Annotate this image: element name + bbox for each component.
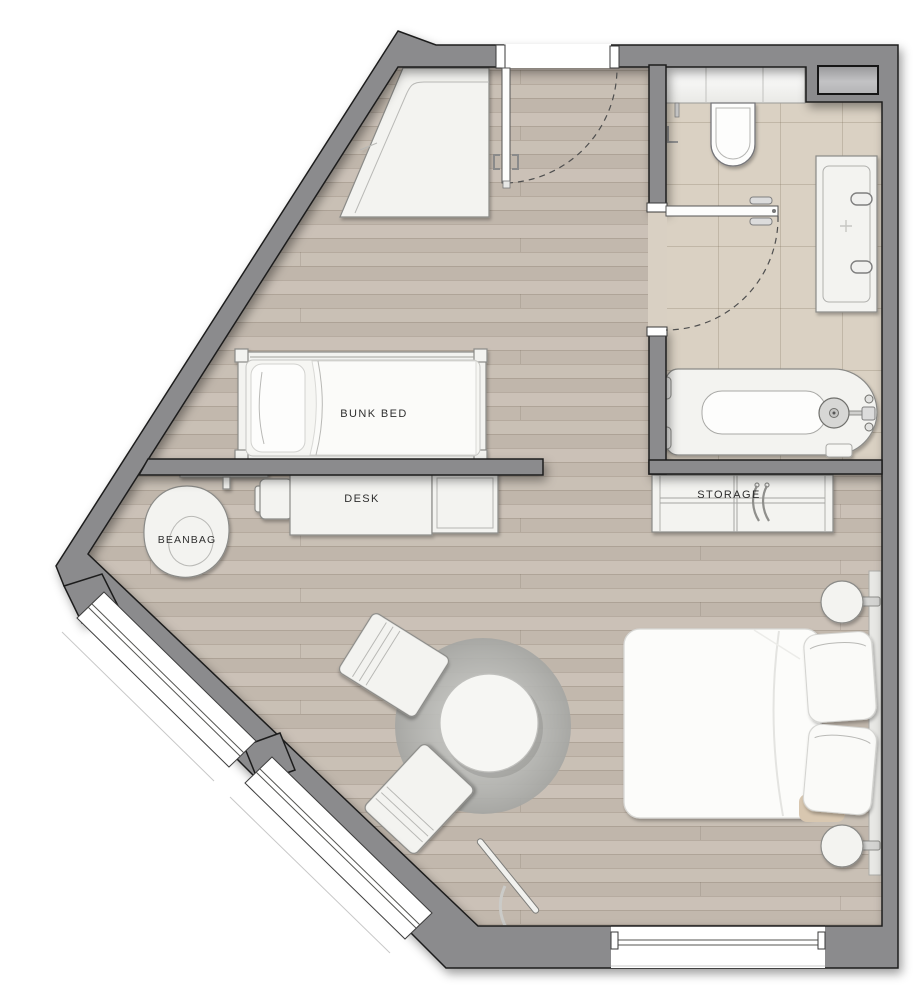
wall-hook-icon <box>675 103 679 117</box>
bed-pillow-2 <box>802 723 877 816</box>
bathroom-wall-bottom <box>649 460 882 474</box>
window-bottom <box>611 926 825 968</box>
entry-door-leaf <box>502 68 510 183</box>
bathroom-wall-lower <box>649 328 666 474</box>
tub-step <box>826 444 852 457</box>
desk-side-unit <box>432 473 498 533</box>
washbasin-unit <box>816 156 877 312</box>
bathtub <box>663 369 877 457</box>
entry-opening <box>496 44 619 68</box>
bathroom-door-leaf <box>666 206 778 216</box>
storage-wardrobe <box>652 475 833 532</box>
desk-label: DESK <box>344 493 380 505</box>
beanbag-label: BEANBAG <box>158 534 216 546</box>
toilet <box>711 103 755 166</box>
rail-hook <box>223 477 230 489</box>
wall-niche <box>818 66 878 94</box>
bunk-bed-label: BUNK BED <box>340 408 407 420</box>
nightstand-1 <box>821 581 863 623</box>
interior-wall <box>139 459 543 475</box>
floor-plan: BUNK BED DESK BEANBAG STORAGE <box>0 0 918 1000</box>
bunk-bed <box>235 349 487 463</box>
desk-top <box>290 475 432 535</box>
storage-label: STORAGE <box>697 489 760 501</box>
bed-pillow-1 <box>803 631 877 724</box>
bed-duvet <box>624 629 821 818</box>
bathroom-wall-upper <box>649 65 666 210</box>
desk-chair <box>260 479 292 519</box>
vanity-counter <box>660 67 805 103</box>
bathroom-door-opening <box>647 203 667 336</box>
floor-plan-svg: BUNK BED DESK BEANBAG STORAGE <box>0 0 918 1000</box>
nightstand-2 <box>821 825 863 867</box>
beanbag <box>144 486 229 577</box>
headboard <box>869 571 881 875</box>
